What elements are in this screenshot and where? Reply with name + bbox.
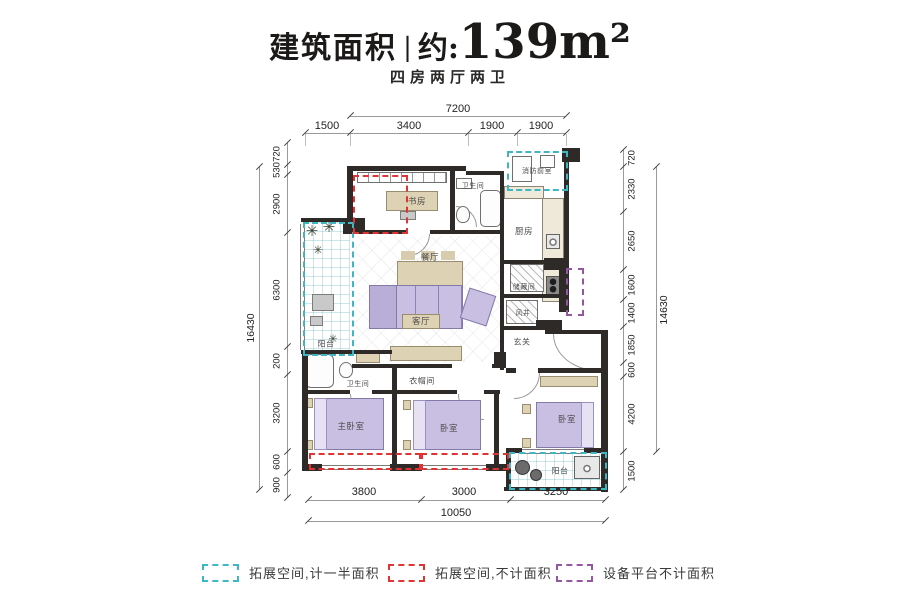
bathtub [480,190,501,227]
legend-label-half-area: 拓展空间,计一半面积 [249,563,380,582]
dim-line-left-total [259,167,260,490]
title-approx-text: 约: [418,31,459,66]
dim-label-left-seg: 600 [272,454,283,470]
dim-label-right-seg: 600 [627,362,638,378]
legend-label-equipment-platform: 设备平台不计面积 [603,563,715,582]
room-label-fire-lobby: 消防前室 [522,166,552,176]
wall-segment [500,175,504,235]
bed-pillow [581,402,594,448]
legend-item-half-area: 拓展空间,计一半面积 [202,563,380,582]
dim-label-right-seg: 2650 [627,230,638,251]
dim-label-right-seg: 4200 [627,403,638,424]
dim-label-left-seg: 3200 [272,402,283,423]
dim-label-top-seg: 3400 [397,120,421,132]
dim-tick [563,112,570,119]
dim-line-bottom-segments [308,500,605,501]
dim-label-right-seg: 720 [627,150,638,166]
dim-label-left-seg: 900 [272,477,283,493]
room-label-study: 书房 [408,195,426,207]
floor-plan-page: { "header": { "title_name": "建筑面积", "tit… [0,0,900,600]
dim-extension [305,134,306,146]
wall-segment [302,390,350,394]
wall-segment [352,364,452,368]
legend-swatch-red [388,564,425,582]
room-label-bathroom-2: 卫生间 [347,379,370,389]
dim-tick [653,448,660,455]
wall-segment [397,390,457,394]
dim-tick [620,486,627,493]
dim-line-right-total [656,167,657,452]
tv-cabinet [390,346,462,361]
wall-segment [536,320,562,330]
dim-label-top-seg: 1900 [480,120,504,132]
dim-line-bottom-total [308,521,605,522]
dim-tick [256,486,263,493]
dim-label-left-total: 16430 [245,313,257,342]
dim-label-left-seg: 720 [272,146,283,162]
wall-segment [545,330,601,334]
room-label-bedroom-2: 卧室 [440,422,458,434]
nightstand [403,440,411,450]
dim-line-top-segments [305,133,566,134]
legend-item-equipment-platform: 设备平台不计面积 [556,563,715,582]
toilet [456,206,470,223]
dim-label-top-seg: 1900 [529,120,553,132]
dim-label-right-seg: 2330 [627,178,638,199]
entry-door-arc [553,334,598,371]
toilet [339,362,353,378]
no-area-zone-bedroom [309,453,421,470]
wall-segment [466,171,504,175]
dim-label-right-seg: 1500 [627,460,638,481]
dim-tick [284,494,291,501]
stove-icon [546,276,560,295]
room-label-kitchen: 厨房 [515,225,533,237]
room-label-balcony-1: 阳台 [318,339,335,350]
wall-segment [302,350,308,471]
room-label-dining: 餐厅 [421,251,439,263]
dim-tick [602,517,609,524]
dim-extension [350,134,351,146]
wall-segment [504,294,559,298]
wall-segment [506,368,516,373]
nightstand [522,404,531,414]
dim-label-top-total: 7200 [446,103,470,115]
layout-subtitle: 四房两厅两卫 [0,66,900,87]
wall-segment [504,260,559,264]
nightstand [403,400,411,410]
dim-line-right-segments [623,150,624,490]
legend-label-no-area: 拓展空间,不计面积 [435,563,552,582]
dim-label-right-seg: 1600 [627,274,638,295]
room-label-bathroom-1: 卫生间 [462,181,485,191]
wall-segment [450,171,455,233]
wardrobe [540,376,598,387]
no-area-zone-bedroom [421,453,509,470]
wall-segment [494,352,506,368]
half-area-zone-balcony [303,222,354,356]
dim-label-bottom-total: 10050 [441,507,472,519]
dim-label-right-seg: 1400 [627,302,638,323]
dim-label-left-seg: 6300 [272,279,283,300]
dim-tick [602,496,609,503]
room-label-cloakroom: 衣帽间 [409,376,435,387]
wall-segment [392,364,397,464]
legend-swatch-purple [556,564,593,582]
room-label-balcony-2: 阳台 [552,466,569,477]
title-area-text: 建筑面积 [269,31,397,66]
dim-label-right-seg: 1850 [627,334,638,355]
wall-segment [538,368,604,373]
dim-label-top-seg: 1500 [315,120,339,132]
door-arc [514,373,540,399]
dim-line-left-segments [287,143,288,498]
dim-label-bottom-seg: 3000 [452,486,476,498]
no-area-zone-study [353,175,408,234]
wall-segment [372,390,394,394]
room-label-air-shaft: 风井 [516,308,531,318]
bed-pillow [314,398,327,450]
dim-label-bottom-seg: 3800 [352,486,376,498]
dim-label-left-seg: 2900 [272,193,283,214]
dim-label-left-seg: 200 [272,353,283,369]
nightstand [522,438,531,448]
dim-label-left-seg: 530 [272,162,283,178]
wall-segment [450,230,504,234]
dim-label-right-total: 14630 [658,295,670,324]
sofa-chaise [369,285,397,329]
room-label-living: 客厅 [412,315,430,327]
kitchen-sink [546,234,560,249]
room-label-master-bedroom: 主卧室 [337,420,364,432]
legend-item-no-area: 拓展空间,不计面积 [388,563,552,582]
legend-swatch-cyan [202,564,239,582]
title-separator: | [403,33,412,63]
wall-segment [350,166,466,171]
room-label-bedroom-3: 卧室 [558,413,576,425]
wall-segment [500,234,504,370]
dim-extension [468,134,469,146]
page-title: 建筑面积|约:139m² [0,14,900,70]
equipment-platform-zone [566,268,584,316]
title-area-value: 139m² [459,14,631,70]
bathtub [305,354,334,388]
room-label-storage: 储藏间 [513,282,536,292]
dim-extension [566,134,567,146]
dim-line-top-total [350,116,566,117]
bed-pillow [413,400,426,450]
dim-extension [517,134,518,146]
room-label-foyer: 玄关 [514,337,531,348]
